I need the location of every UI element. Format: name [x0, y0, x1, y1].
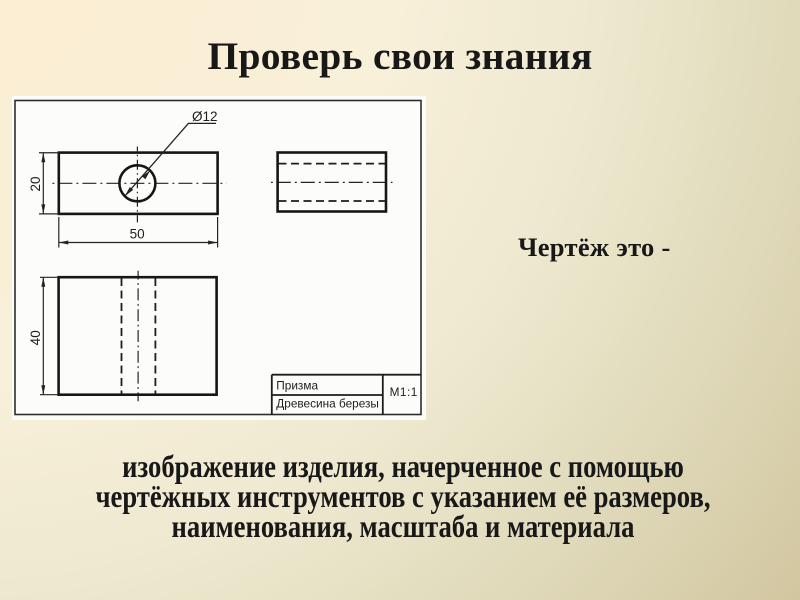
svg-text:20: 20 [28, 176, 43, 191]
svg-text:Ø12: Ø12 [192, 109, 218, 124]
svg-text:М1:1: М1:1 [390, 385, 418, 399]
svg-text:Призма: Призма [276, 378, 318, 392]
svg-text:40: 40 [28, 330, 43, 345]
svg-text:50: 50 [130, 227, 145, 242]
svg-text:Древесина березы: Древесина березы [276, 397, 379, 411]
